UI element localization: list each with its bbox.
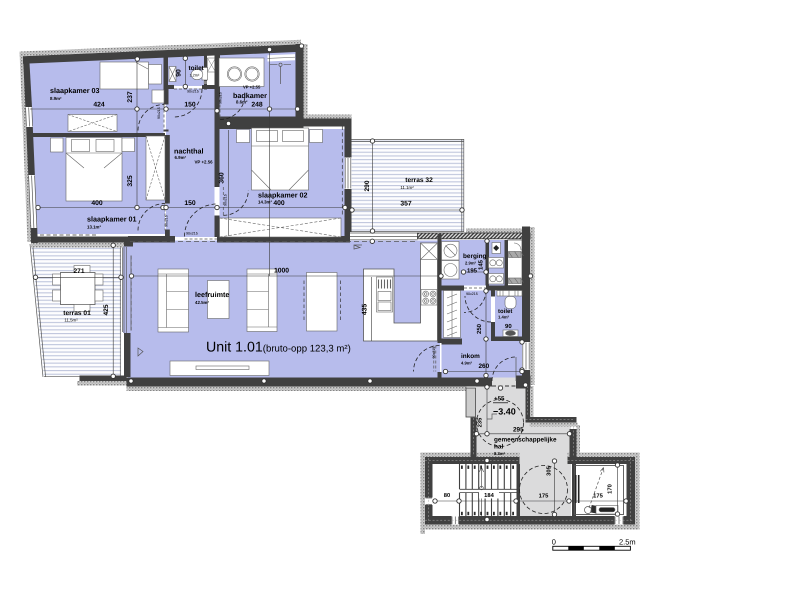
svg-text:−3.40: −3.40	[493, 407, 516, 417]
svg-text:90x215: 90x215	[157, 107, 161, 119]
svg-text:90: 90	[176, 69, 183, 77]
svg-text:305: 305	[546, 465, 553, 475]
svg-text:11.1m²: 11.1m²	[400, 185, 414, 190]
svg-text:175: 175	[539, 494, 549, 500]
svg-text:150: 150	[184, 102, 196, 109]
svg-text:1000: 1000	[274, 268, 289, 275]
svg-text:170: 170	[607, 484, 614, 494]
svg-text:400: 400	[273, 200, 285, 207]
svg-text:90x215: 90x215	[466, 292, 478, 296]
svg-text:184: 184	[484, 492, 494, 499]
svg-text:terras 32: terras 32	[405, 177, 433, 184]
svg-text:slaapkamer 01: slaapkamer 01	[87, 215, 137, 224]
svg-text:2.9m²: 2.9m²	[465, 261, 477, 266]
svg-text:+55: +55	[494, 396, 505, 403]
svg-text:90x215: 90x215	[187, 90, 199, 94]
svg-text:8.6m²: 8.6m²	[236, 100, 248, 105]
svg-text:slaapkamer 02: slaapkamer 02	[258, 191, 308, 200]
svg-text:145: 145	[478, 259, 485, 270]
svg-text:inkom: inkom	[461, 353, 480, 360]
svg-text:195: 195	[467, 268, 478, 275]
svg-text:90x215: 90x215	[219, 92, 223, 104]
svg-text:90x215: 90x215	[224, 194, 228, 206]
svg-text:6.9m²: 6.9m²	[175, 155, 187, 160]
svg-text:290: 290	[364, 180, 371, 191]
svg-text:13.1m²: 13.1m²	[87, 225, 101, 230]
svg-text:berging: berging	[463, 253, 487, 260]
svg-text:357: 357	[400, 201, 412, 208]
svg-text:8.9m²: 8.9m²	[50, 96, 62, 101]
svg-text:435: 435	[362, 304, 369, 316]
svg-text:400: 400	[91, 200, 103, 207]
svg-text:VP +2.55: VP +2.55	[243, 85, 261, 90]
svg-text:237: 237	[127, 91, 134, 103]
svg-text:8.3m²: 8.3m²	[494, 451, 506, 456]
svg-text:250: 250	[476, 323, 483, 334]
svg-text:175: 175	[593, 494, 603, 500]
svg-text:leefruimte: leefruimte	[195, 290, 229, 299]
svg-text:425: 425	[103, 304, 110, 315]
svg-text:90x215: 90x215	[165, 215, 169, 227]
svg-text:325: 325	[127, 175, 134, 187]
svg-text:271: 271	[73, 268, 84, 275]
svg-text:150: 150	[184, 200, 196, 207]
svg-text:235: 235	[477, 417, 484, 427]
svg-text:90x215: 90x215	[186, 232, 198, 236]
svg-text:90: 90	[505, 323, 512, 330]
svg-text:11,5m²: 11,5m²	[64, 318, 78, 323]
svg-text:424: 424	[93, 102, 105, 109]
svg-text:gemeenschappelijke: gemeenschappelijke	[494, 437, 557, 444]
svg-text:14.3m²: 14.3m²	[258, 200, 272, 205]
svg-text:toilet: toilet	[189, 65, 205, 72]
svg-text:360: 360	[219, 172, 226, 184]
svg-text:4.9m²: 4.9m²	[461, 361, 473, 366]
svg-text:VP +2.56: VP +2.56	[195, 160, 214, 165]
svg-text:slaapkamer 03: slaapkamer 03	[50, 86, 100, 95]
svg-text:terras 01: terras 01	[63, 310, 91, 317]
svg-text:0: 0	[552, 538, 556, 547]
svg-text:90x215: 90x215	[432, 347, 436, 359]
svg-text:1.4m²: 1.4m²	[498, 315, 510, 320]
svg-text:260: 260	[479, 363, 490, 370]
svg-text:hal: hal	[494, 444, 503, 451]
svg-text:2.5m: 2.5m	[619, 538, 636, 547]
svg-text:1.2m²: 1.2m²	[190, 74, 200, 78]
svg-text:248: 248	[251, 102, 263, 109]
svg-text:42.5m²: 42.5m²	[195, 300, 209, 305]
svg-text:80: 80	[444, 492, 450, 499]
svg-text:295: 295	[513, 427, 524, 434]
